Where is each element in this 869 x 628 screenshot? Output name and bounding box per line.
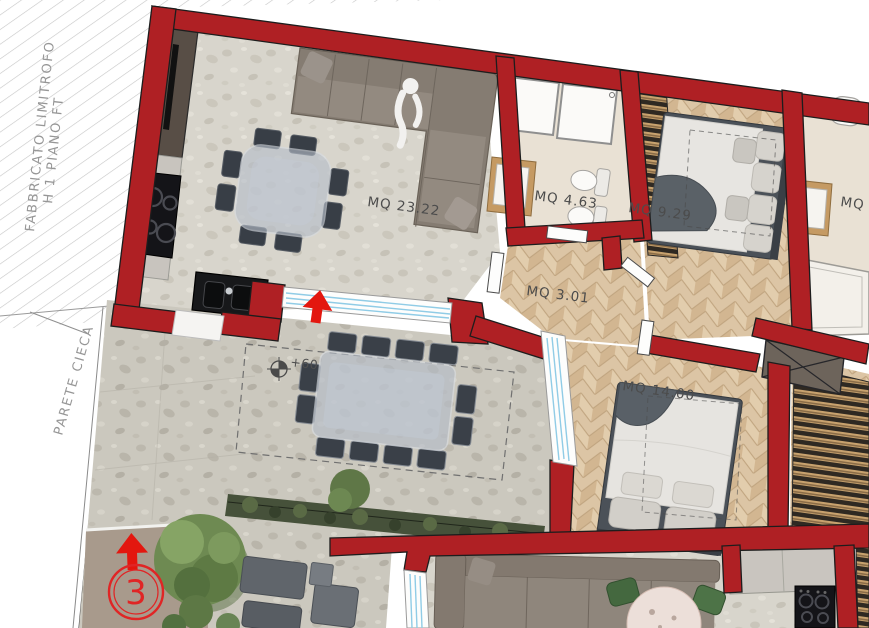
wall-lower-right	[834, 545, 858, 628]
wall-bedroom2-right	[768, 362, 790, 532]
wall-window-stub	[550, 460, 574, 542]
floor-plan-page: FABBRICATO LIMITROFO H 1 PIANO FT PARETE…	[0, 0, 869, 628]
door-threshold-terrace	[172, 310, 224, 341]
window-lower-unit	[404, 570, 429, 628]
unit-number: 3	[125, 573, 147, 613]
floor-plan-canvas: FABBRICATO LIMITROFO H 1 PIANO FT PARETE…	[0, 0, 869, 628]
bed-bedroom-1	[647, 112, 795, 260]
wall-hall-stub	[602, 236, 622, 270]
wall-lower-divider	[722, 545, 742, 593]
blind-wall-label: PARETE CIECA	[51, 323, 97, 437]
